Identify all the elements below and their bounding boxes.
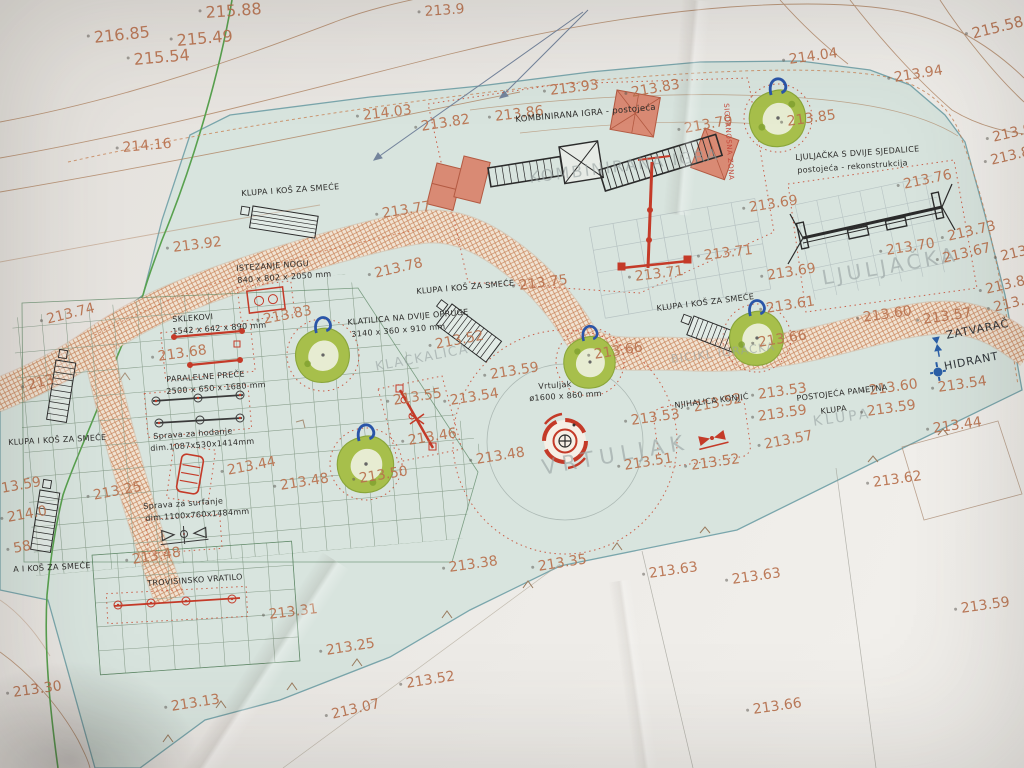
site-plan-photo: KOMBINIRANA IGRALJULJAČKAKLACKALICAVRTUL…	[0, 0, 1024, 768]
photo-vignette	[0, 0, 1024, 768]
